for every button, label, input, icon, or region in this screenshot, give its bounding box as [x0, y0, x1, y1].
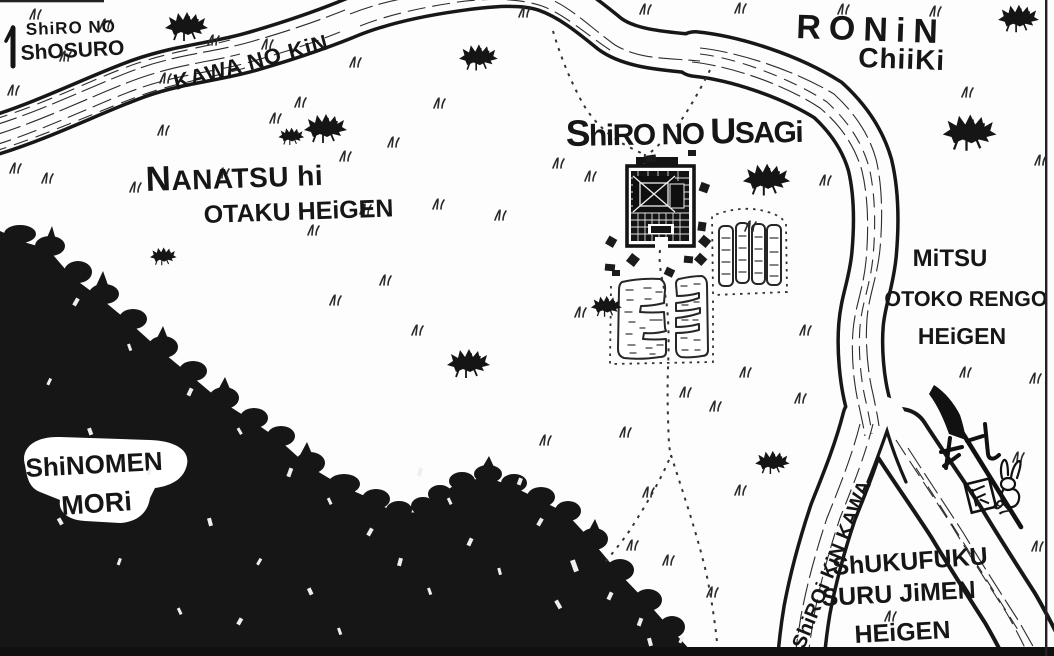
- svg-text:ShiRO NO: ShiRO NO: [25, 17, 116, 39]
- svg-text:MiTSU: MiTSU: [913, 245, 988, 272]
- svg-text:MORi: MORi: [60, 486, 132, 521]
- svg-text:HEiGEN: HEiGEN: [854, 616, 951, 649]
- svg-text:HEiGEN: HEiGEN: [918, 323, 1006, 349]
- svg-text:OTOKO RENGO: OTOKO RENGO: [884, 287, 1047, 311]
- svg-text:ChiiKi: ChiiKi: [858, 42, 946, 76]
